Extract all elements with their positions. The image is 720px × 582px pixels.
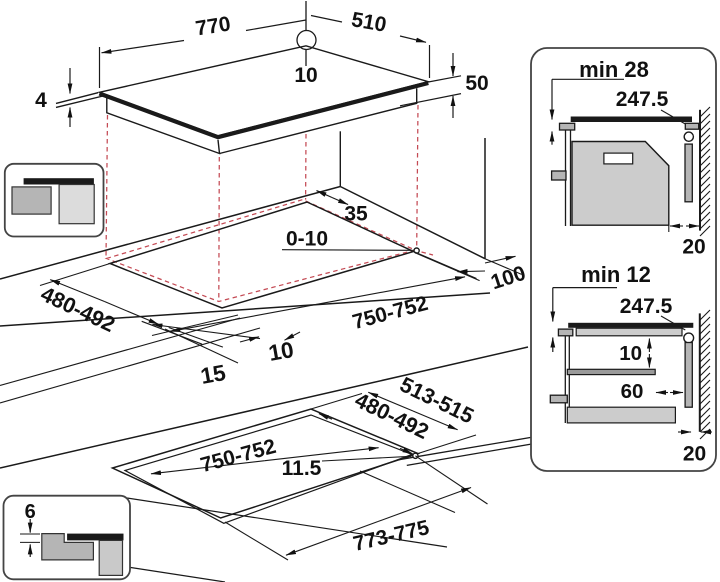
svg-text:10: 10 [619, 342, 642, 365]
svg-text:4: 4 [35, 89, 47, 112]
svg-text:min 12: min 12 [581, 262, 651, 287]
svg-text:35: 35 [344, 203, 368, 226]
svg-text:10: 10 [267, 337, 296, 366]
svg-text:247.5: 247.5 [616, 88, 669, 111]
svg-text:min 28: min 28 [579, 57, 649, 82]
svg-text:15: 15 [199, 360, 228, 389]
svg-text:10: 10 [294, 64, 317, 87]
svg-text:0-10: 0-10 [286, 228, 328, 251]
svg-text:50: 50 [465, 72, 488, 95]
svg-text:20: 20 [683, 443, 706, 466]
svg-text:11.5: 11.5 [282, 457, 322, 480]
svg-text:20: 20 [682, 236, 705, 259]
svg-text:60: 60 [621, 380, 644, 403]
svg-text:247.5: 247.5 [620, 295, 673, 318]
